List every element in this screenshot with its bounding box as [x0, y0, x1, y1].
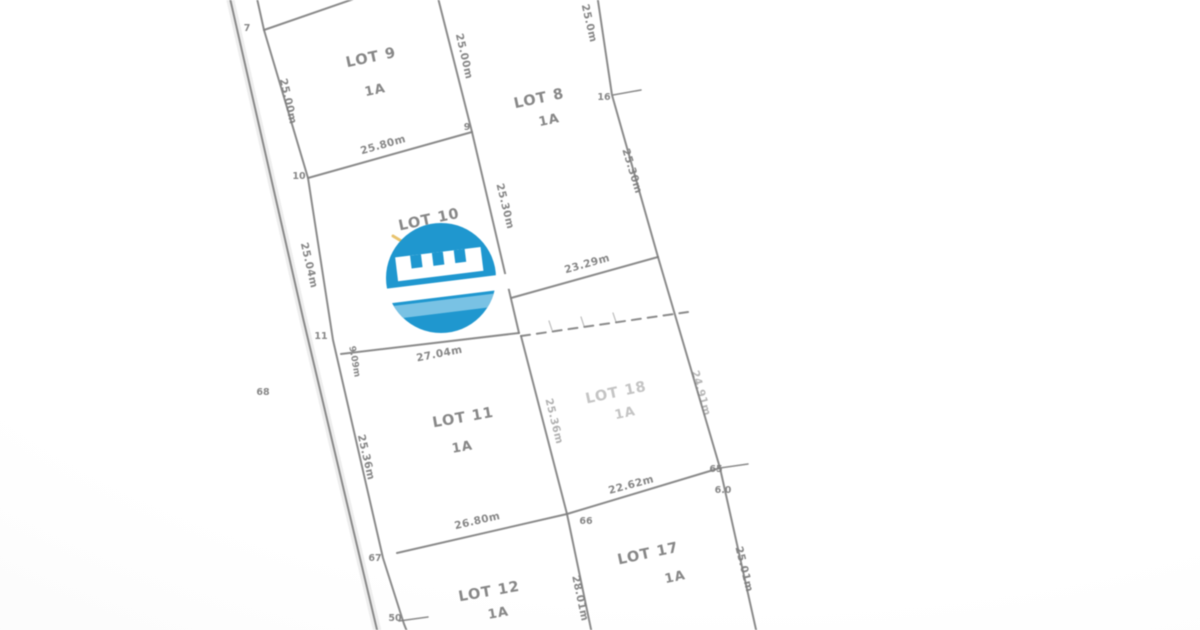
boundary-line	[581, 317, 584, 326]
vertex-label: 50	[388, 613, 402, 624]
vertex-label: 16	[597, 92, 611, 103]
measurement-label: 25.00m	[277, 77, 299, 125]
vertex-label: 65	[709, 464, 722, 475]
area-label: 1A	[663, 568, 687, 587]
logo-ruler-notch	[432, 252, 445, 266]
lot-label: LOT 11	[431, 405, 495, 432]
watermark-logo	[383, 223, 535, 333]
survey-plat-page: LOT 91ALOT 81ALOT 10LOT 111ALOT 181ALOT …	[0, 0, 1200, 630]
measurement-label: 25.30m	[619, 147, 644, 195]
area-label: 1A	[451, 438, 474, 456]
measurement-label: 22.62m	[607, 473, 655, 497]
vertex-label: 67	[368, 553, 381, 564]
vertex-label: 7	[244, 23, 251, 34]
measurement-label: 25.36m	[355, 433, 377, 481]
vertex-label: 10	[292, 171, 306, 182]
vertex-label: 66	[579, 516, 593, 527]
lot-label: LOT 8	[513, 86, 566, 112]
measurement-label: 26.80m	[453, 510, 501, 532]
measurement-label: 9.09m	[346, 345, 361, 378]
measurement-label: 25.0m	[579, 3, 599, 44]
lot-label: LOT 18	[584, 379, 648, 408]
lot-label: LOT 9	[345, 45, 398, 71]
measurement-label: 25.30m	[493, 182, 516, 230]
logo-ruler-notch	[410, 254, 423, 268]
area-label: 1A	[613, 404, 637, 423]
measurement-label: 27.04m	[415, 344, 463, 365]
area-label: 1A	[487, 604, 510, 622]
lot-label: LOT 17	[616, 540, 680, 569]
boundary-line	[613, 313, 616, 322]
lot-label: LOT 12	[457, 579, 521, 606]
vertex-label: 11	[314, 331, 327, 342]
logo-ruler-notch	[454, 249, 467, 263]
plat-svg: LOT 91ALOT 81ALOT 10LOT 111ALOT 181ALOT …	[0, 0, 1200, 630]
measurement-label: 25.36m	[542, 397, 565, 445]
vertex-label: 9	[464, 122, 471, 133]
boundary-line	[658, 257, 720, 468]
vertex-label: 68	[256, 387, 270, 398]
measurement-label: 25.04m	[298, 241, 320, 289]
measurement-label: 28.01m	[569, 574, 590, 622]
boundary-line	[597, 0, 658, 257]
boundary-line-dashed	[521, 312, 688, 336]
measurement-label: 25.01m	[732, 545, 755, 593]
measurement-label: 25.80m	[359, 133, 407, 157]
boundary-line	[720, 464, 748, 468]
measurement-label: 24.91m	[689, 369, 713, 417]
boundary-line	[264, 0, 368, 30]
plat-lines	[229, 0, 757, 630]
area-label: 1A	[363, 81, 387, 100]
boundary-line	[613, 90, 641, 95]
boundary-line	[549, 321, 552, 330]
vertex-label: 6.0	[715, 485, 732, 496]
area-label: 1A	[537, 111, 561, 130]
